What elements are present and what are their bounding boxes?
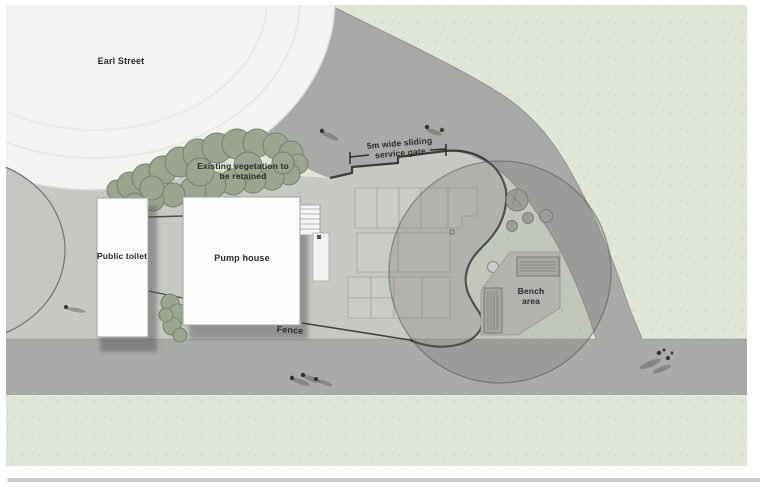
pump-house-label: Pump house bbox=[200, 253, 284, 263]
public-toilet-building bbox=[97, 198, 148, 337]
site-plan-svg bbox=[0, 0, 768, 487]
vegetation-note-label: Existing vegetation to be retained bbox=[181, 162, 305, 182]
bench-area-label: Bench area bbox=[501, 287, 561, 307]
earl-street-label: Earl Street bbox=[78, 56, 164, 66]
site-plan: Earl Street Existing vegetation to be re… bbox=[0, 0, 768, 487]
public-toilet-label: Public toilet bbox=[90, 252, 154, 262]
overlay-circle bbox=[389, 161, 611, 383]
bench-area-line2: area bbox=[501, 297, 561, 307]
page-footer-rule bbox=[7, 478, 760, 482]
vegetation-note-line2: be retained bbox=[181, 172, 305, 182]
